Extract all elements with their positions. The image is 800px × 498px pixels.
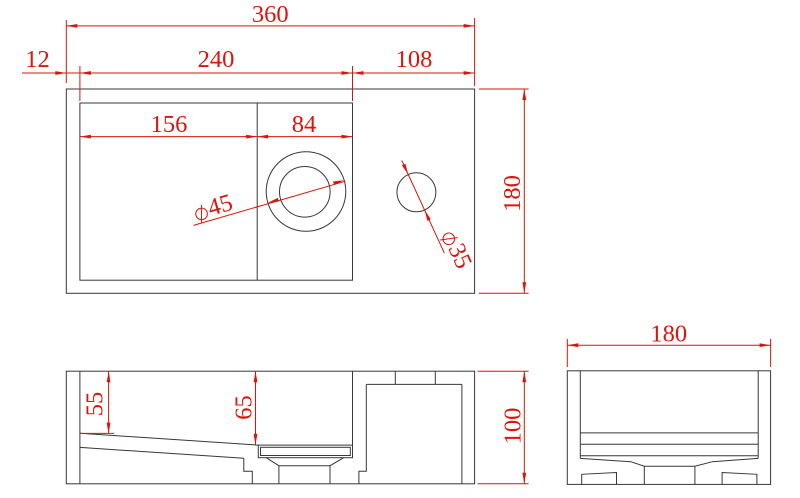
svg-text:360: 360: [252, 1, 289, 28]
svg-text:156: 156: [151, 111, 188, 138]
svg-text:240: 240: [198, 46, 235, 73]
svg-text:180: 180: [650, 321, 687, 348]
svg-text:108: 108: [396, 46, 433, 73]
svg-text:12: 12: [25, 46, 50, 73]
svg-text:55: 55: [81, 392, 108, 417]
svg-text:100: 100: [499, 408, 526, 445]
svg-text:180: 180: [499, 175, 526, 212]
svg-text:84: 84: [292, 111, 317, 138]
svg-text:65: 65: [231, 395, 258, 420]
svg-text:45: 45: [205, 189, 236, 222]
